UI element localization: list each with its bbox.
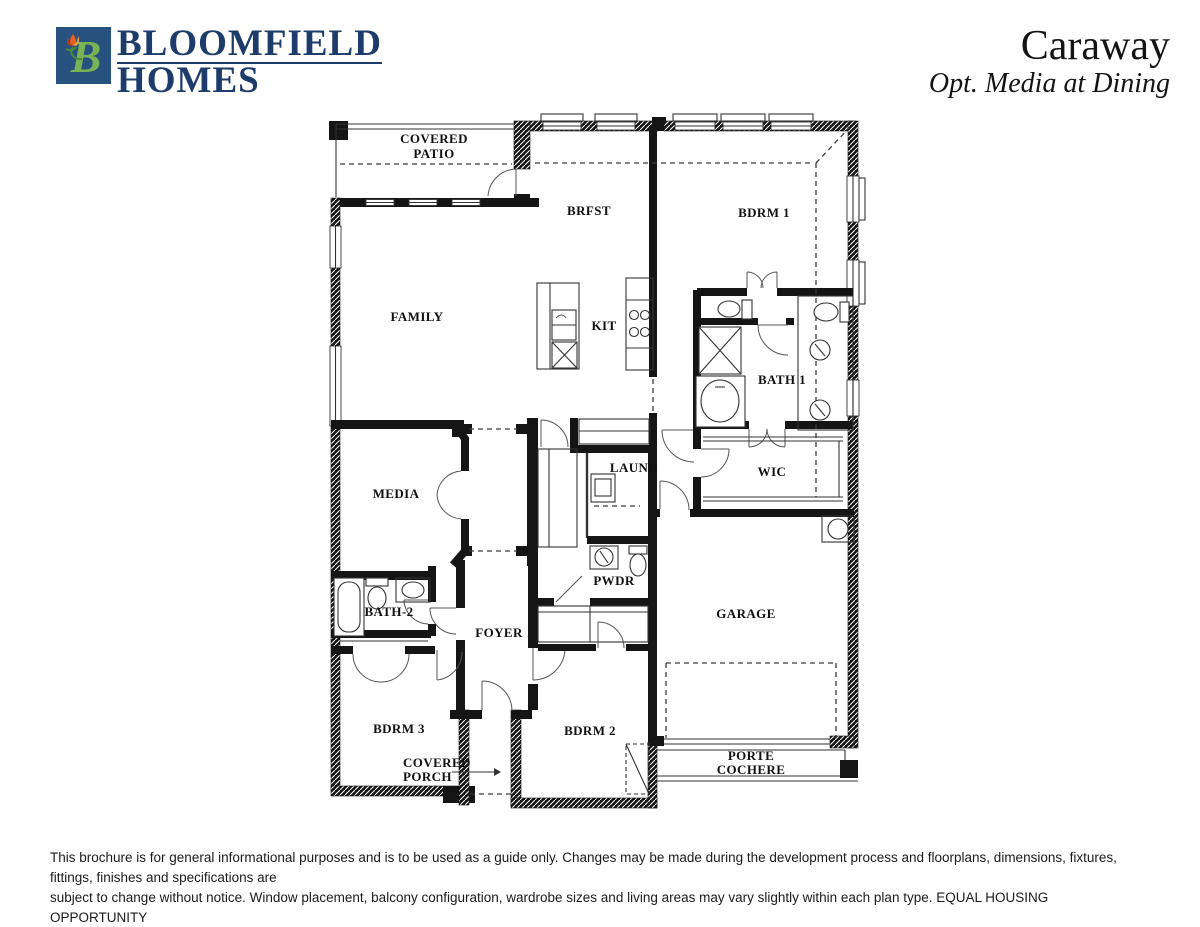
plan-title: Caraway: [929, 24, 1170, 68]
room-label-pwdr: PWDR: [593, 573, 635, 588]
plan-subtitle: Opt. Media at Dining: [929, 68, 1170, 100]
room-label-covered-patio-1: COVERED: [400, 131, 468, 146]
disclaimer-line2: subject to change without notice. Window…: [50, 888, 1145, 927]
room-label-kit: KIT: [591, 318, 616, 333]
bloomfield-logo: B BLOOMFIELD HOMES: [56, 27, 382, 97]
room-label-media: MEDIA: [373, 486, 420, 501]
plan-titles: Caraway Opt. Media at Dining: [929, 24, 1170, 100]
room-label-laund: LAUND: [610, 460, 658, 475]
ceiling-dashed-lines: [535, 128, 849, 497]
room-label-bath2: BATH-2: [364, 604, 413, 619]
room-label-covered-patio-2: PATIO: [413, 146, 454, 161]
room-label-wic: WIC: [758, 464, 787, 479]
disclaimer-line1: This brochure is for general information…: [50, 848, 1145, 888]
floor-plan: COVERED PATIO FAMILY BRFST KIT BDRM 1 BA…: [322, 105, 874, 820]
room-label-bdrm1: BDRM 1: [738, 205, 790, 220]
disclaimer: This brochure is for general information…: [50, 848, 1145, 927]
room-label-bath1: BATH 1: [758, 372, 806, 387]
room-label-covered-porch-2: PORCH: [403, 769, 452, 784]
room-label-covered-porch-1: COVERED: [403, 755, 471, 770]
room-label-garage: GARAGE: [716, 606, 775, 621]
brand-name: BLOOMFIELD HOMES: [117, 27, 382, 97]
room-label-brfst: BRFST: [567, 203, 611, 218]
brochure-page: B BLOOMFIELD HOMES Caraway Opt. Media at…: [0, 0, 1200, 927]
tulip-b-logo-icon: B: [56, 27, 111, 84]
room-label-porte-cochere-2: COCHERE: [717, 762, 786, 777]
room-label-bdrm2: BDRM 2: [564, 723, 616, 738]
room-labels: COVERED PATIO FAMILY BRFST KIT BDRM 1 BA…: [364, 131, 806, 784]
room-label-family: FAMILY: [391, 309, 444, 324]
brand-line1: BLOOMFIELD: [117, 27, 382, 61]
brand-line2: HOMES: [117, 64, 382, 97]
room-label-foyer: FOYER: [475, 625, 523, 640]
room-label-porte-cochere-1: PORTE: [728, 748, 774, 763]
room-label-bdrm3: BDRM 3: [373, 721, 425, 736]
